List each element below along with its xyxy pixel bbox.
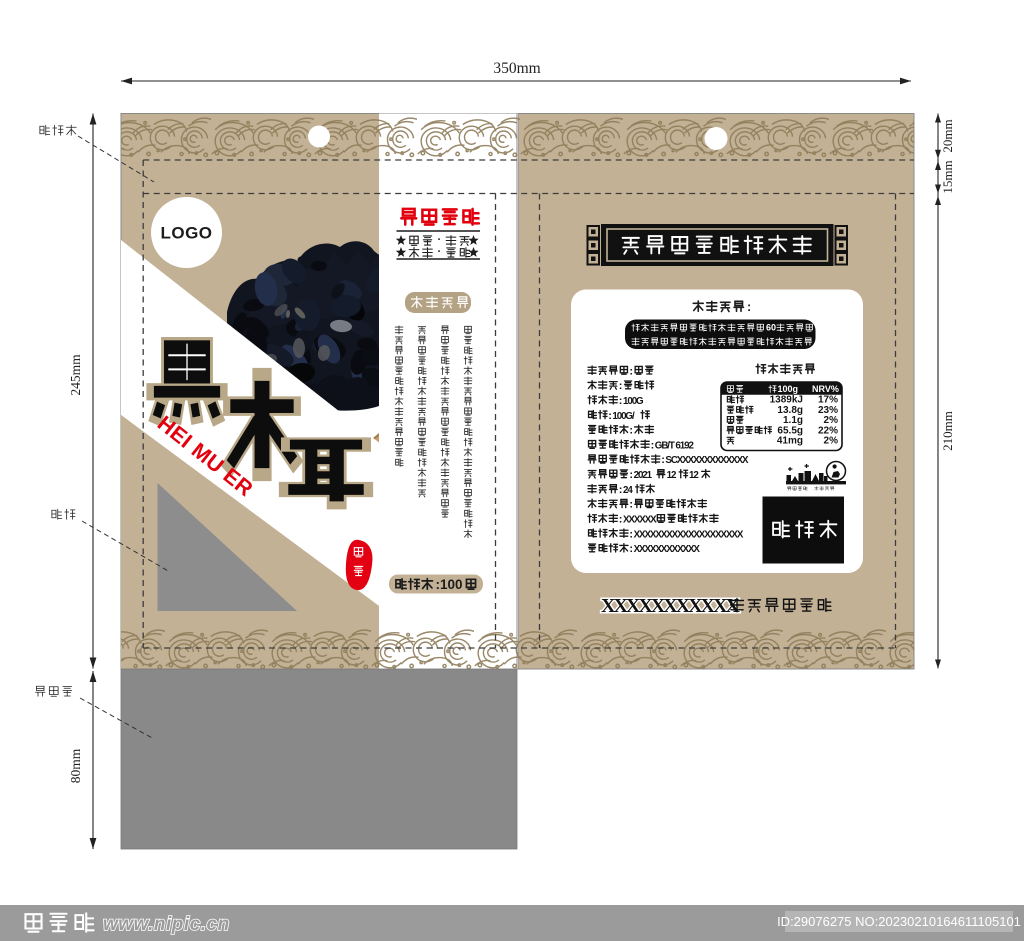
svg-text::: : [629, 528, 633, 540]
svg-text:2021: 2021 [634, 470, 653, 481]
svg-text:210mm: 210mm [940, 411, 955, 451]
svg-text:·: · [438, 246, 442, 258]
svg-text::: : [619, 395, 623, 407]
svg-text:XXXXXXXXXXXXXXXXXXXX: XXXXXXXXXXXXXXXXXXXX [634, 529, 744, 540]
svg-text:www.nipic.cn: www.nipic.cn [103, 914, 230, 935]
svg-text:2%: 2% [824, 436, 839, 447]
svg-text::100: :100 [436, 577, 463, 592]
svg-text:XXXXXXXXXXX: XXXXXXXXXXX [601, 595, 740, 617]
svg-text:XXXXXX: XXXXXX [623, 515, 657, 526]
svg-text::: : [629, 469, 633, 481]
svg-text::: : [629, 499, 633, 511]
svg-text:100g: 100g [778, 384, 799, 394]
svg-text::: : [608, 410, 612, 422]
svg-text::: : [661, 454, 665, 466]
svg-text:ID:29076275 NO:202302101646111: ID:29076275 NO:20230210164611105101 [777, 914, 1021, 929]
svg-text::: : [619, 380, 623, 392]
svg-text:350mm: 350mm [493, 60, 540, 77]
svg-text:NRV%: NRV% [812, 384, 839, 394]
svg-text:XXXXXXXXXXXX: XXXXXXXXXXXX [634, 544, 701, 555]
svg-text::: : [629, 365, 633, 377]
svg-text:100G: 100G [623, 396, 644, 407]
svg-text:100G/: 100G/ [612, 411, 635, 422]
svg-text:SCXXXXXXXXXXXXX: SCXXXXXXXXXXXXX [665, 455, 749, 466]
svg-text::: : [747, 300, 751, 314]
svg-text:·: · [438, 234, 442, 246]
svg-text:60: 60 [766, 323, 776, 333]
svg-text::: : [651, 439, 655, 451]
svg-text::: : [619, 484, 623, 496]
svg-text:LOGO: LOGO [160, 224, 212, 243]
svg-text:20mm: 20mm [940, 119, 955, 152]
svg-text::: : [629, 425, 633, 437]
svg-text:80mm: 80mm [68, 748, 83, 783]
svg-text::: : [619, 514, 623, 526]
svg-text:GB/T 6192: GB/T 6192 [655, 440, 695, 451]
svg-text:41mg: 41mg [777, 436, 803, 447]
svg-text::: : [629, 543, 633, 555]
svg-text:245mm: 245mm [68, 354, 83, 396]
svg-text:15mm: 15mm [940, 160, 955, 193]
